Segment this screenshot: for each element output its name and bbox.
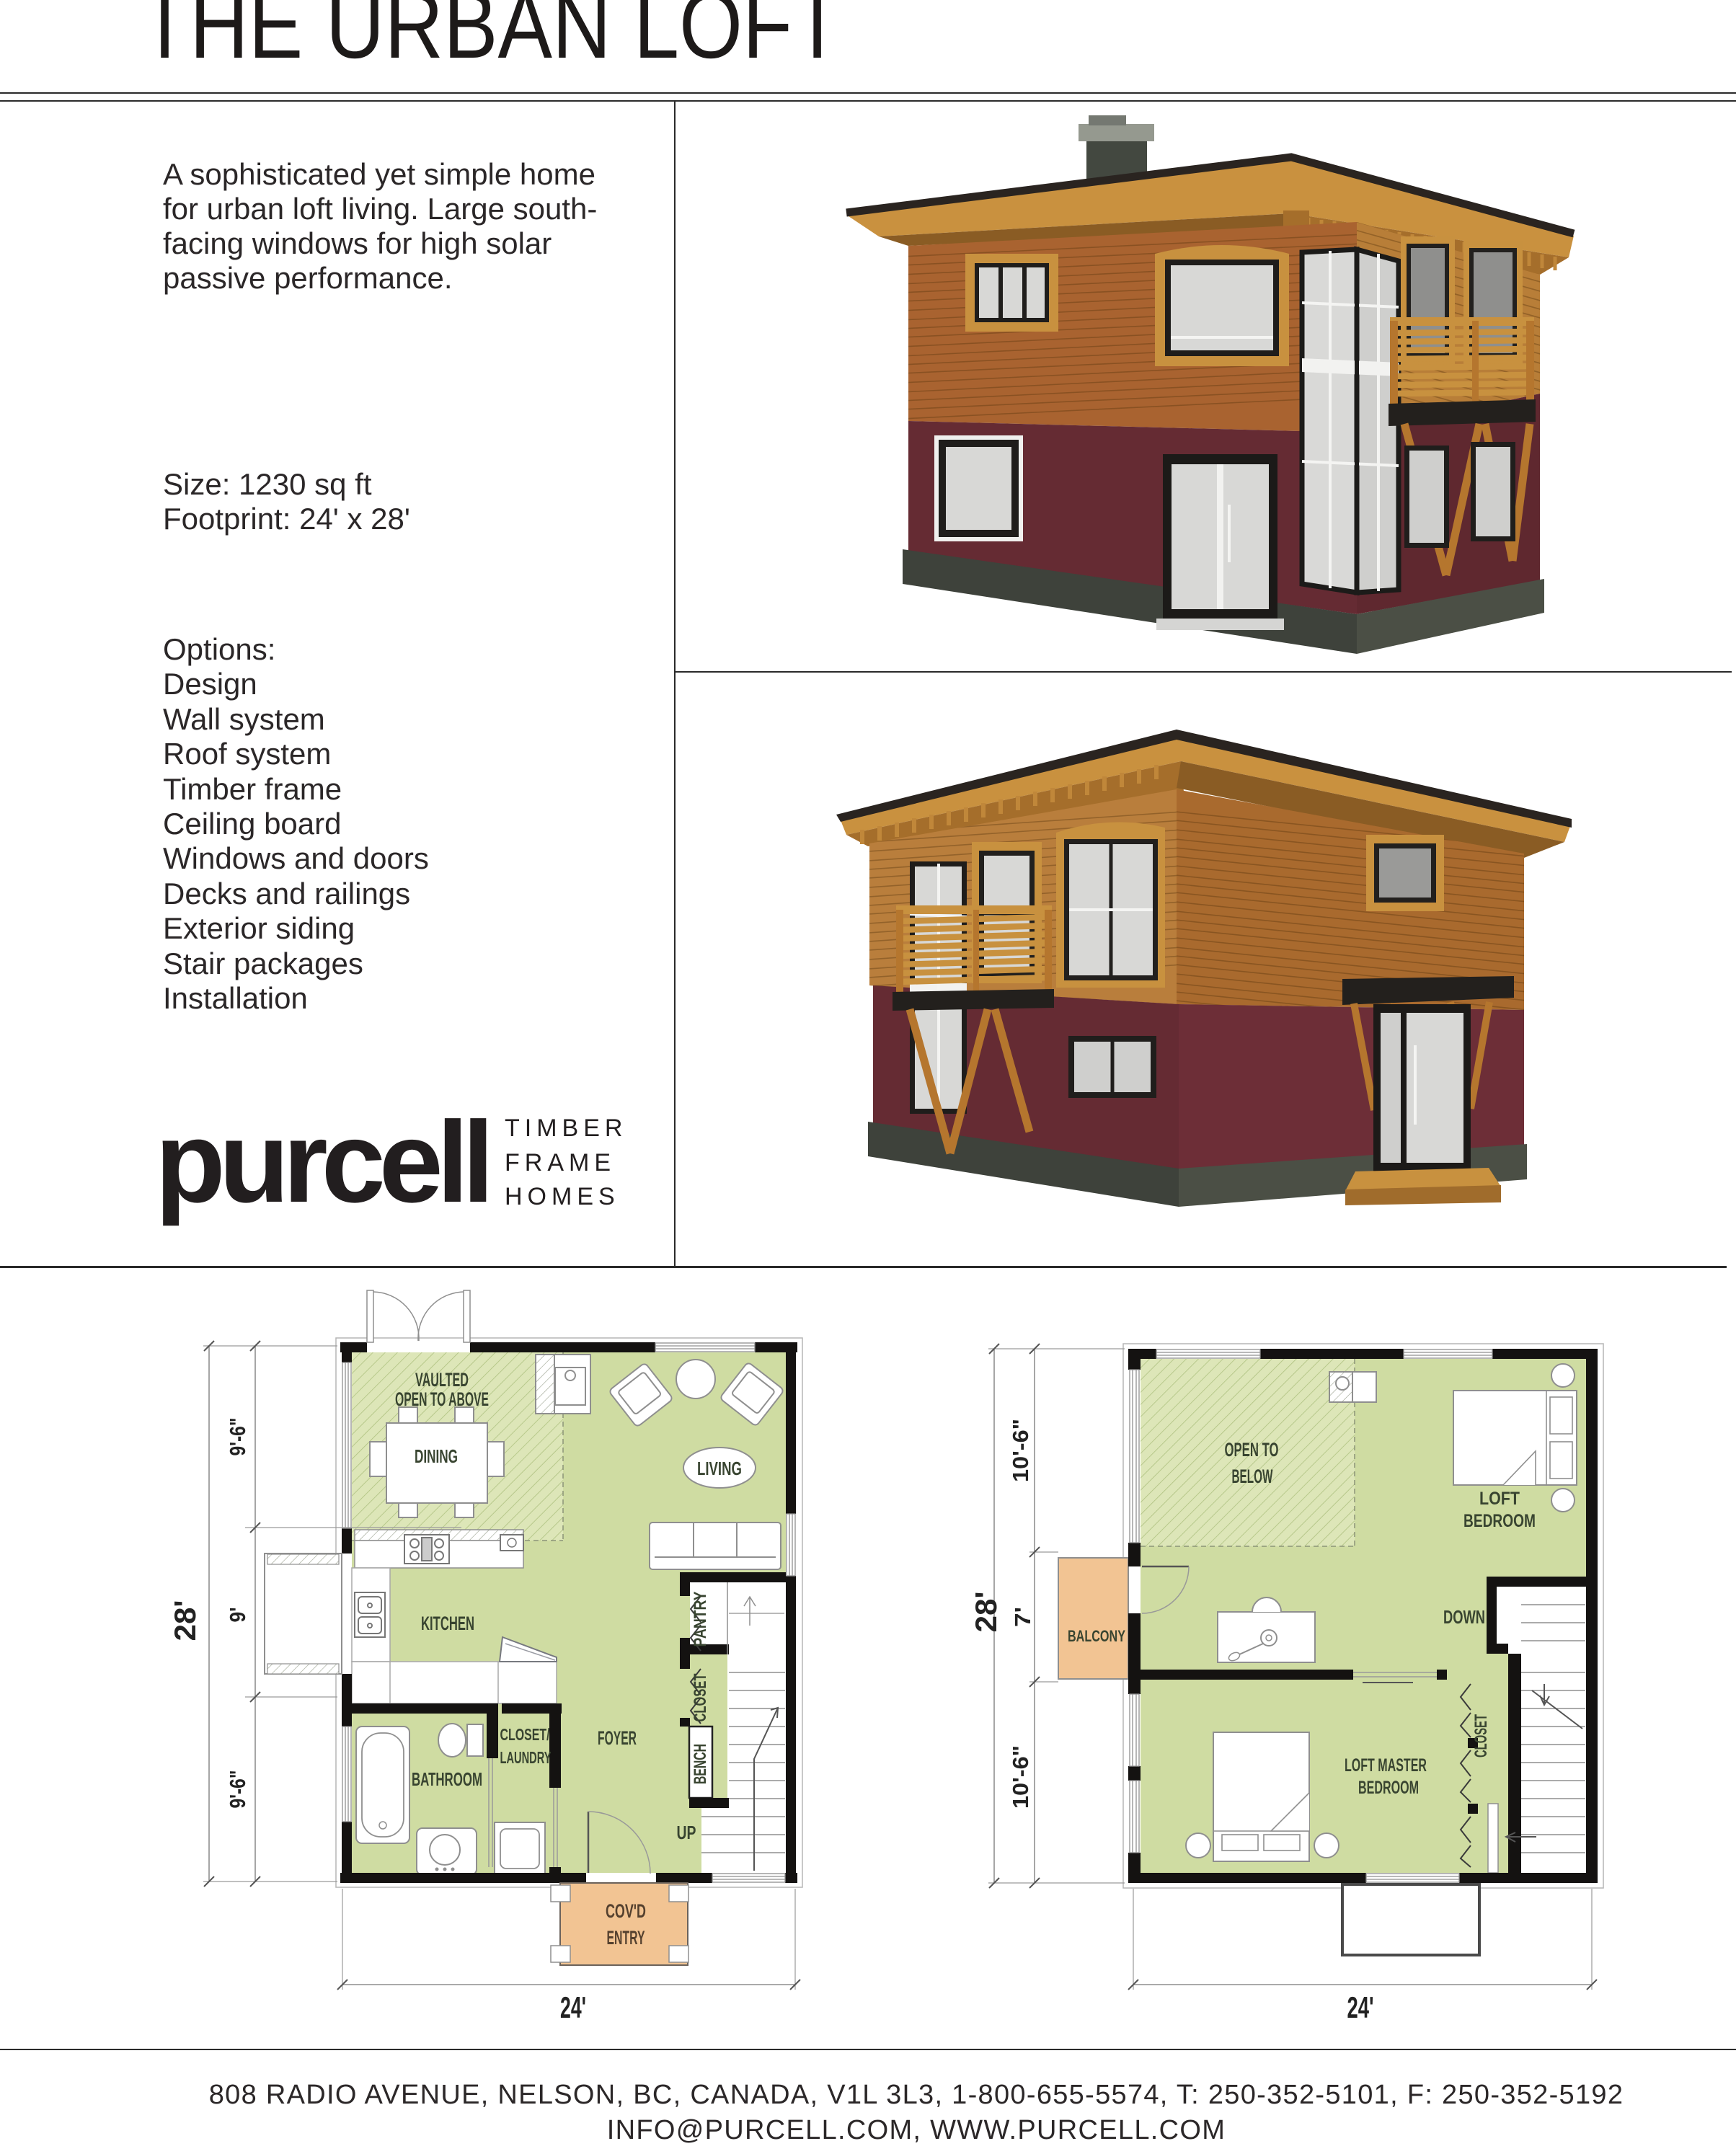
svg-text:24': 24' [560, 1990, 586, 2024]
svg-text:LIVING: LIVING [697, 1458, 742, 1479]
svg-text:LOFT: LOFT [1479, 1489, 1520, 1509]
svg-text:28': 28' [168, 1600, 202, 1641]
svg-text:ENTRY: ENTRY [607, 1927, 645, 1949]
svg-text:10'-6": 10'-6" [1008, 1419, 1033, 1482]
svg-text:DOWN: DOWN [1443, 1606, 1485, 1628]
svg-text:CLOSET: CLOSET [691, 1673, 710, 1721]
svg-text:LOFT MASTER: LOFT MASTER [1345, 1755, 1427, 1776]
svg-text:9'-6": 9'-6" [225, 1770, 250, 1809]
svg-text:OPEN TO: OPEN TO [1225, 1439, 1279, 1461]
svg-text:BALCONY: BALCONY [1068, 1627, 1125, 1645]
svg-text:10'-6": 10'-6" [1008, 1745, 1033, 1809]
svg-text:PANTRY: PANTRY [691, 1592, 710, 1647]
svg-text:9': 9' [225, 1608, 250, 1623]
svg-text:LAUNDRY: LAUNDRY [500, 1748, 552, 1767]
svg-text:VAULTED: VAULTED [415, 1369, 469, 1391]
svg-text:CLOSET/: CLOSET/ [500, 1725, 550, 1744]
svg-text:BEDROOM: BEDROOM [1358, 1778, 1419, 1798]
svg-text:BENCH: BENCH [691, 1744, 710, 1784]
svg-text:BELOW: BELOW [1232, 1466, 1273, 1487]
svg-text:BEDROOM: BEDROOM [1463, 1511, 1536, 1531]
svg-text:CLOSET: CLOSET [1471, 1714, 1491, 1758]
svg-text:KITCHEN: KITCHEN [421, 1613, 474, 1634]
svg-text:DINING: DINING [415, 1445, 458, 1467]
svg-text:FOYER: FOYER [598, 1727, 637, 1749]
svg-text:UP: UP [677, 1822, 696, 1843]
svg-text:BATHROOM: BATHROOM [412, 1768, 482, 1790]
svg-text:COV'D: COV'D [606, 1900, 646, 1922]
svg-text:24': 24' [1347, 1990, 1374, 2024]
svg-text:7': 7' [1010, 1607, 1035, 1627]
svg-text:28': 28' [969, 1592, 1003, 1633]
svg-text:9'-6": 9'-6" [225, 1418, 250, 1456]
